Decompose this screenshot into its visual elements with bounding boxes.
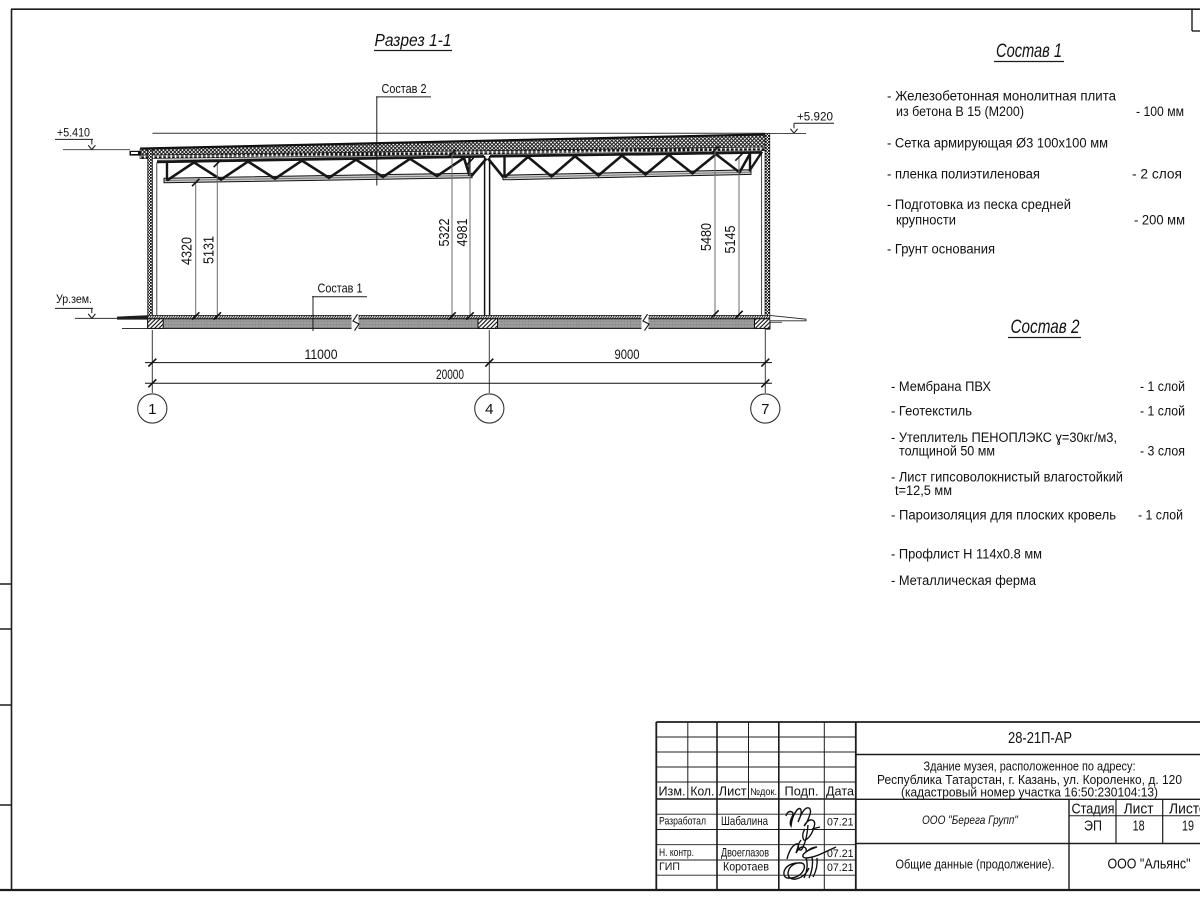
svg-text:- 200 мм: - 200 мм: [1134, 212, 1185, 228]
svg-text:Кол.: Кол.: [690, 785, 714, 799]
svg-text:Состав 2: Состав 2: [382, 82, 427, 96]
svg-text:из бетона В 15 (М200): из бетона В 15 (М200): [896, 104, 1024, 120]
svg-text:5131: 5131: [201, 236, 217, 264]
svg-text:ООО "Альянс": ООО "Альянс": [1108, 856, 1191, 873]
svg-text:Стадия: Стадия: [1072, 801, 1115, 817]
svg-text:+5.920: +5.920: [797, 110, 833, 124]
svg-text:5322: 5322: [437, 219, 453, 247]
svg-text:18: 18: [1133, 818, 1145, 835]
svg-text:№док.: №док.: [750, 787, 777, 798]
svg-text:4320: 4320: [180, 237, 196, 265]
svg-text:Лист: Лист: [719, 785, 747, 799]
svg-text:11000: 11000: [305, 346, 338, 362]
svg-text:t=12,5 мм: t=12,5 мм: [895, 483, 952, 499]
svg-text:Изм.: Изм.: [659, 785, 686, 799]
svg-text:- пленка полиэтиленовая: - пленка полиэтиленовая: [887, 166, 1040, 182]
svg-text:Листов: Листов: [1169, 801, 1200, 817]
svg-text:Коротаев: Коротаев: [723, 861, 769, 874]
svg-text:Общие данные (продолжение).: Общие данные (продолжение).: [896, 857, 1055, 872]
svg-text:- Геотекстиль: - Геотекстиль: [891, 404, 972, 420]
svg-text:(кадастровый номер участка 16:: (кадастровый номер участка 16:50:230104:…: [901, 784, 1158, 799]
svg-text:Разрез 1-1: Разрез 1-1: [375, 30, 452, 50]
svg-text:28-21П-АР: 28-21П-АР: [1008, 730, 1072, 747]
svg-text:5480: 5480: [699, 223, 715, 251]
svg-text:07.21: 07.21: [827, 817, 854, 829]
svg-text:- Металлическая ферма: - Металлическая ферма: [891, 573, 1036, 589]
svg-text:20000: 20000: [436, 366, 464, 382]
svg-text:- Железобетонная монолитная п: - Железобетонная монолитная плита: [887, 89, 1116, 105]
svg-text:+5.410: +5.410: [57, 126, 90, 140]
svg-text:1: 1: [148, 401, 156, 418]
svg-text:Состав 1: Состав 1: [318, 282, 363, 296]
svg-text:толщиной 50 мм: толщиной 50 мм: [899, 444, 995, 460]
svg-text:Н. контр.: Н. контр.: [659, 847, 694, 859]
svg-text:- Профлист Н 114х0.8 мм: - Профлист Н 114х0.8 мм: [891, 547, 1042, 563]
svg-text:ООО "Берега Групп": ООО "Берега Групп": [922, 813, 1019, 827]
svg-text:Дата: Дата: [826, 785, 854, 799]
svg-text:4: 4: [485, 401, 493, 418]
svg-text:4981: 4981: [455, 219, 471, 247]
svg-text:19: 19: [1182, 818, 1194, 835]
svg-text:крупности: крупности: [896, 212, 956, 228]
svg-text:5145: 5145: [723, 226, 739, 254]
svg-text:- Подготовка из песка средней: - Подготовка из песка средней: [887, 197, 1071, 213]
svg-text:- Пароизоляция для плоских кро: - Пароизоляция для плоских кровель: [891, 508, 1116, 524]
svg-text:Состав 2: Состав 2: [1011, 317, 1080, 338]
svg-text:07.21: 07.21: [827, 862, 854, 874]
svg-text:Двоеглазов: Двоеглазов: [721, 847, 769, 860]
svg-text:Шабалина: Шабалина: [721, 815, 768, 828]
svg-text:Разработал: Разработал: [659, 816, 706, 828]
svg-text:7: 7: [761, 401, 769, 418]
svg-text:- Сетка армирующая Ø3 100х100: - Сетка армирующая Ø3 100х100 мм: [887, 136, 1108, 152]
svg-text:ГИП: ГИП: [659, 861, 680, 873]
svg-text:ЭП: ЭП: [1084, 818, 1102, 835]
svg-text:- 2 слоя: - 2 слоя: [1132, 166, 1182, 182]
svg-text:Состав 1: Состав 1: [996, 41, 1062, 62]
svg-text:- Мембрана ПВХ: - Мембрана ПВХ: [891, 379, 991, 395]
svg-text:- 3 слоя: - 3 слоя: [1140, 444, 1185, 460]
svg-text:- 1 слой: - 1 слой: [1140, 379, 1185, 395]
svg-text:Лист: Лист: [1124, 801, 1154, 817]
svg-text:9000: 9000: [615, 346, 640, 362]
svg-text:- 100 мм: - 100 мм: [1136, 104, 1184, 120]
svg-text:- Грунт основания: - Грунт основания: [887, 241, 995, 257]
svg-text:- 1 слой: - 1 слой: [1138, 508, 1183, 524]
svg-text:Ур.зем.: Ур.зем.: [56, 292, 92, 306]
svg-text:Подп.: Подп.: [785, 785, 819, 799]
svg-text:- 1 слой: - 1 слой: [1140, 404, 1185, 420]
